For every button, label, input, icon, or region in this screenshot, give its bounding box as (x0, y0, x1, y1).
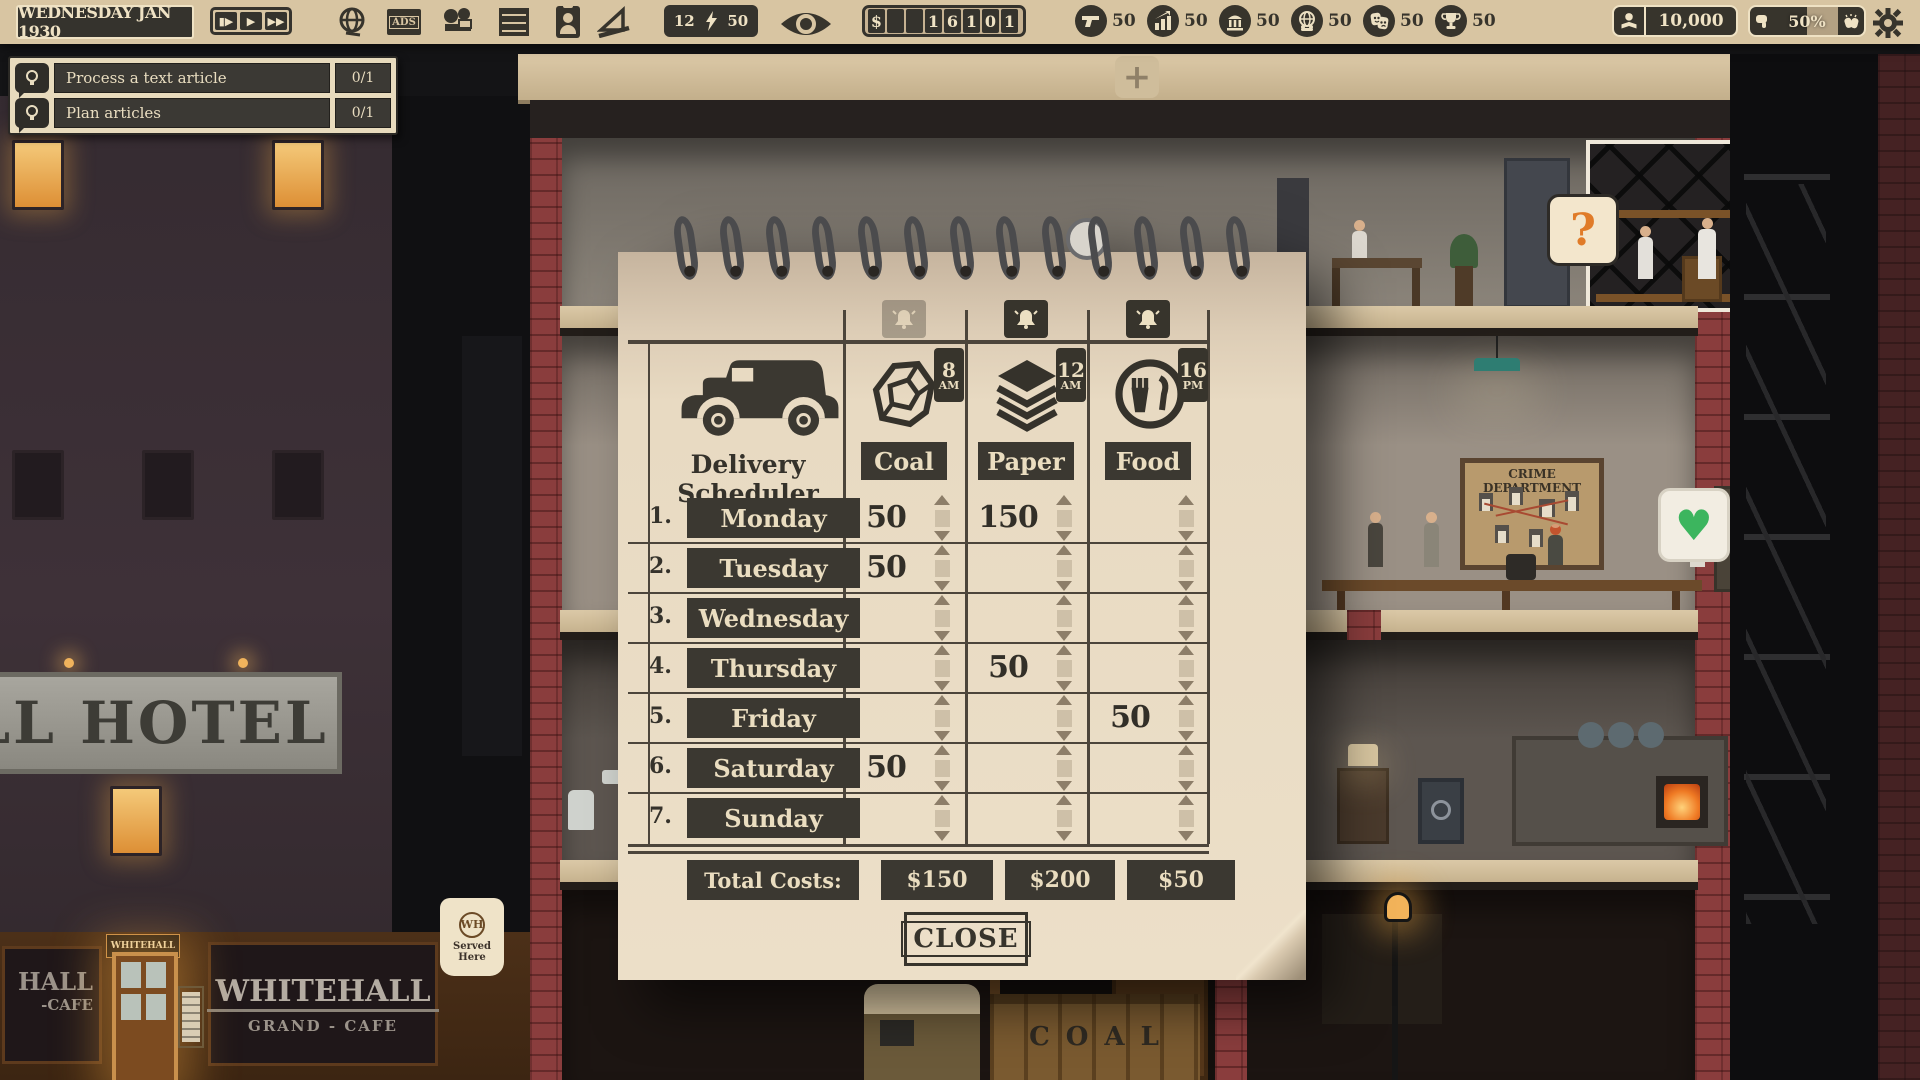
politics-icon (1219, 5, 1251, 37)
entertainment-icon (1363, 5, 1395, 37)
fast-button[interactable]: ▶ (240, 12, 262, 30)
hotel-window (272, 450, 324, 520)
coal-alarm-bell[interactable] (882, 300, 926, 338)
paper-cell-value: 150 (967, 500, 1049, 535)
lamp-cord (1496, 336, 1498, 358)
day-text: Saturday (713, 754, 833, 783)
hotel-window (12, 450, 64, 520)
food-meridiem: PM (1183, 380, 1203, 391)
hotel-window (142, 450, 194, 520)
stat-economy: 50 (1147, 5, 1208, 37)
scheduler-paper: Delivery Scheduler (618, 252, 1306, 980)
bolt-icon (705, 11, 718, 31)
world-map-icon[interactable] (332, 5, 372, 39)
row-number: 5. (649, 703, 672, 729)
schedule-row: 2. Tuesday 50 (653, 543, 1244, 593)
stat-crime: 50 (1075, 5, 1136, 37)
board-photo (1529, 529, 1543, 547)
quest-progress: 0/1 (335, 98, 391, 128)
entertainment-value: 50 (1400, 11, 1424, 31)
layout-tools-icon[interactable] (594, 5, 634, 39)
food-total: $50 (1127, 860, 1235, 900)
food-column-label: Food (1105, 442, 1191, 480)
day-label: Tuesday (687, 548, 860, 588)
sport-value: 50 (1472, 11, 1496, 31)
paper-stepper[interactable] (1054, 745, 1074, 791)
paper-stepper[interactable] (1054, 495, 1074, 541)
economy-icon (1147, 5, 1179, 37)
furnace-fire (1664, 784, 1700, 820)
paper-stepper[interactable] (1054, 645, 1074, 691)
top-bar: WEDNESDAY JAN 1930 ▮▶ ▶ ▶▶ ADS (0, 0, 1920, 44)
day-text: Thursday (711, 654, 836, 683)
sign-lamp (64, 658, 74, 668)
fast-glyph: ▶ (247, 15, 255, 28)
day-text: Tuesday (719, 554, 827, 583)
crime-value: 50 (1112, 11, 1136, 31)
table-lamp (1348, 744, 1378, 766)
hotel-window (272, 140, 324, 210)
door-pane (121, 962, 141, 988)
paper-stepper[interactable] (1054, 545, 1074, 591)
play-button[interactable]: ▮▶ (215, 12, 237, 30)
cafe-name: WHITEHALL (207, 974, 438, 1012)
date-text: WEDNESDAY JAN 1930 (18, 3, 192, 41)
quest-item[interactable]: Process a text article 0/1 (15, 63, 391, 93)
money-digit (887, 9, 904, 33)
cafe-subtitle: GRAND - CAFE (248, 1017, 398, 1035)
close-label: CLOSE (901, 921, 1030, 957)
spiral-binding (676, 216, 1248, 294)
paper-total-value: $200 (1029, 867, 1090, 893)
speed-controls: ▮▶ ▶ ▶▶ (210, 7, 292, 35)
drawer-cabinet (1337, 768, 1389, 844)
day-label: Friday (687, 698, 860, 738)
approval-value: 50% (1776, 7, 1838, 35)
page-curl (1236, 910, 1306, 980)
quest-progress: 0/1 (335, 63, 391, 93)
hotel-sign: LL HOTEL (0, 672, 342, 774)
row-number: 7. (649, 803, 672, 829)
society-icon (1291, 5, 1323, 37)
food-label: Food (1116, 447, 1181, 476)
food-plate-icon (1114, 358, 1186, 430)
total-costs-label: Total Costs: (687, 860, 859, 900)
food-stepper[interactable] (1176, 595, 1196, 641)
paper-time: 12 (1057, 360, 1085, 380)
food-stepper[interactable] (1176, 695, 1196, 741)
lightbulb-icon (15, 63, 49, 93)
street-lamp-head (1384, 892, 1412, 922)
stat-entertainment: 50 (1363, 5, 1424, 37)
press-roller (1578, 722, 1604, 748)
coal-column-label: Coal (861, 442, 947, 480)
cafe-door-sign-text: WHITEHALL (111, 941, 176, 951)
cafe-menu-board (178, 986, 204, 1048)
paper-total: $200 (1005, 860, 1115, 900)
attic-band (530, 100, 1730, 138)
desk-leg (1332, 268, 1340, 308)
schedule-row: 1. Monday 50 150 (653, 493, 1244, 543)
cafe-sign-text: Served Here (448, 941, 496, 963)
food-stepper[interactable] (1176, 545, 1196, 591)
builder[interactable] (1638, 226, 1653, 279)
schedule-row: 4. Thursday 50 (653, 643, 1244, 693)
quest-item[interactable]: Plan articles 0/1 (15, 98, 391, 128)
readers-value: 10,000 (1646, 11, 1736, 31)
paper-label: Paper (987, 447, 1065, 476)
food-stepper[interactable] (1176, 495, 1196, 541)
bathroom-fixture (568, 790, 594, 830)
delivery-scheduler-modal: Delivery Scheduler (618, 216, 1306, 980)
hotel-sign-text: LL HOTEL (0, 689, 329, 757)
sign-lamp (238, 658, 248, 668)
coal-stepper[interactable] (932, 795, 952, 841)
day-label: Monday (687, 498, 860, 538)
schedule-row: 7. Sunday (653, 793, 1244, 843)
food-time-badge: 16 PM (1178, 348, 1208, 402)
staff-icon[interactable] (548, 5, 588, 39)
question-mark: ? (1570, 205, 1596, 256)
money-counter: $ 1 6 1 0 1 (862, 5, 1026, 37)
row-number: 2. (649, 553, 672, 579)
hotel-window (110, 786, 162, 856)
door-pane (121, 994, 141, 1020)
printing-machine (1512, 736, 1728, 846)
game-screen: LL HOTEL HALL -CAFE WHITEHALL GRAND - CA… (0, 0, 1920, 1080)
quest-label: Process a text article (54, 63, 330, 93)
row-number: 3. (649, 603, 672, 629)
sport-trophy-icon (1435, 5, 1467, 37)
row-number: 1. (649, 503, 672, 529)
schedule-row: 3. Wednesday (653, 593, 1244, 643)
employee[interactable] (1352, 220, 1367, 263)
delivery-truck-icon (668, 347, 852, 447)
coal-meridiem: AM (939, 380, 960, 391)
coal-stepper[interactable] (932, 695, 952, 741)
street-lamp-post (1392, 908, 1398, 1080)
paper-stepper[interactable] (1054, 595, 1074, 641)
cafe-hanging-sign: WH Served Here (440, 898, 504, 976)
money-digit: 0 (982, 9, 999, 33)
paper-cell-value: 50 (967, 650, 1049, 685)
total-costs-text: Total Costs: (704, 868, 842, 893)
safe-dial (1431, 800, 1451, 820)
coal-icon (870, 360, 938, 432)
money-digit (906, 9, 923, 33)
coal-time: 8 (942, 360, 956, 380)
food-time: 16 (1179, 360, 1207, 380)
fire-escape-area (1730, 54, 1920, 1080)
approval-meter: 50% (1748, 5, 1866, 37)
furnace (1656, 776, 1708, 828)
hanging-lamp (1474, 358, 1520, 371)
play-glyph: ▮▶ (219, 15, 234, 28)
paper-alarm-bell[interactable] (1004, 300, 1048, 338)
coal-stepper[interactable] (932, 545, 952, 591)
coal-crate-label: COAL (1015, 1022, 1175, 1052)
reporter[interactable] (1368, 512, 1383, 567)
food-stepper[interactable] (1176, 745, 1196, 791)
thumb-down-icon (1750, 13, 1776, 29)
board-photo (1509, 487, 1523, 505)
coal-total: $150 (881, 860, 993, 900)
press-roller (1608, 722, 1634, 748)
close-button[interactable]: CLOSE (904, 912, 1028, 966)
door-pane (146, 994, 166, 1020)
energy-meter: 12 50 (664, 5, 758, 37)
door-pane (146, 962, 166, 988)
stat-sport: 50 (1435, 5, 1496, 37)
day-label: Saturday (687, 748, 860, 788)
coal-cell-value: 50 (845, 750, 927, 785)
board-photo (1495, 525, 1509, 543)
food-stepper[interactable] (1176, 645, 1196, 691)
food-cell-value: 50 (1089, 700, 1171, 735)
cafe-door (112, 952, 178, 1080)
cafe-main-window: WHITEHALL GRAND - CAFE (208, 942, 438, 1066)
desk (1332, 258, 1422, 268)
money-digit: 1 (963, 9, 980, 33)
money-digit: $ (868, 9, 885, 33)
clap-icon (1838, 13, 1864, 29)
brick-column (530, 94, 562, 1080)
builder[interactable] (1698, 218, 1716, 279)
fastest-glyph: ▶▶ (268, 15, 285, 28)
day-label: Sunday (687, 798, 860, 838)
plant-pot (1455, 266, 1473, 308)
truck-roof (864, 984, 980, 1018)
food-alarm-bell[interactable] (1126, 300, 1170, 338)
coal-label: Coal (874, 447, 934, 476)
far-right-building (1878, 54, 1920, 1080)
quest-label: Plan articles (54, 98, 330, 128)
money-digit: 6 (944, 9, 961, 33)
lightbulb-icon (15, 98, 49, 128)
fire-escape-stairs (1746, 184, 1826, 924)
society-value: 50 (1328, 11, 1352, 31)
long-desk (1322, 580, 1702, 591)
paper-meridiem: AM (1061, 380, 1082, 391)
reader-icon (1614, 7, 1646, 35)
coal-stepper[interactable] (932, 645, 952, 691)
economy-value: 50 (1184, 11, 1208, 31)
money-digit: 1 (925, 9, 942, 33)
hotel-window (12, 140, 64, 210)
press-roller (1638, 722, 1664, 748)
heart-bubble[interactable]: ♥ (1658, 488, 1730, 562)
stat-politics: 50 (1219, 5, 1280, 37)
coal-total-value: $150 (906, 867, 967, 893)
add-floor-button[interactable]: + (1115, 56, 1159, 98)
coal-time-badge: 8 AM (934, 348, 964, 402)
hotel-building: LL HOTEL (0, 96, 392, 936)
crime-icon (1075, 5, 1107, 37)
truck-window (880, 1020, 914, 1046)
plus-label: + (1123, 57, 1152, 97)
coal-stepper[interactable] (932, 745, 952, 791)
cafe-side-window: HALL -CAFE (2, 946, 102, 1064)
schedule-row: 5. Friday 50 (653, 693, 1244, 743)
paper-column-label: Paper (978, 442, 1074, 480)
politics-value: 50 (1256, 11, 1280, 31)
table-rule (628, 844, 1209, 847)
coal-stepper[interactable] (932, 495, 952, 541)
ads-icon[interactable]: ADS (384, 5, 424, 39)
truck-cab (854, 984, 990, 1080)
table-rule (628, 340, 1209, 344)
day-label: Thursday (687, 648, 860, 688)
day-text: Friday (731, 704, 816, 733)
readers-counter: 10,000 (1612, 5, 1738, 37)
safe (1418, 778, 1464, 844)
table-rule (628, 851, 1209, 854)
typewriter (1506, 554, 1536, 580)
date-display: WEDNESDAY JAN 1930 (16, 5, 194, 39)
energy-value: 50 (727, 12, 748, 30)
coal-cell-value: 50 (845, 500, 927, 535)
dark-window (1322, 914, 1442, 1024)
warehouse-crate-icon[interactable] (494, 5, 534, 39)
paper-stepper[interactable] (1054, 695, 1074, 741)
money-digit: 1 (1001, 9, 1018, 33)
food-stepper[interactable] (1176, 795, 1196, 841)
energy-slots: 12 (674, 12, 695, 30)
settings-gear-icon[interactable] (1868, 6, 1908, 40)
reporter[interactable] (1424, 512, 1439, 567)
paper-stack-icon (992, 356, 1062, 432)
row-number: 4. (649, 653, 672, 679)
plant (1450, 234, 1478, 268)
row-number: 6. (649, 753, 672, 779)
fastest-button[interactable]: ▶▶ (265, 12, 287, 30)
coal-crate: COAL (990, 994, 1200, 1080)
day-label: Wednesday (687, 598, 860, 638)
day-text: Wednesday (699, 604, 849, 633)
coal-cell-value: 50 (845, 550, 927, 585)
cafe-sign-logo: WH (459, 912, 485, 938)
desk-leg (1412, 268, 1420, 308)
question-bubble[interactable]: ? (1547, 194, 1619, 266)
coal-stepper[interactable] (932, 595, 952, 641)
stat-society: 50 (1291, 5, 1352, 37)
heart-icon: ♥ (1675, 501, 1713, 550)
cafe-window-text1: HALL (5, 967, 93, 996)
paper-time-badge: 12 AM (1056, 348, 1086, 402)
quest-panel: Process a text article 0/1 Plan articles… (8, 56, 398, 135)
day-text: Monday (720, 504, 826, 533)
food-total-value: $50 (1158, 867, 1204, 893)
printing-press-icon[interactable] (438, 5, 478, 39)
alley-structure (462, 336, 522, 756)
paper-stepper[interactable] (1054, 795, 1074, 841)
schedule-row: 6. Saturday 50 (653, 743, 1244, 793)
day-text: Sunday (724, 804, 823, 833)
observe-eye-icon[interactable] (778, 7, 834, 41)
reporter-seated[interactable] (1548, 524, 1563, 565)
cafe-window-text2: -CAFE (5, 996, 93, 1014)
